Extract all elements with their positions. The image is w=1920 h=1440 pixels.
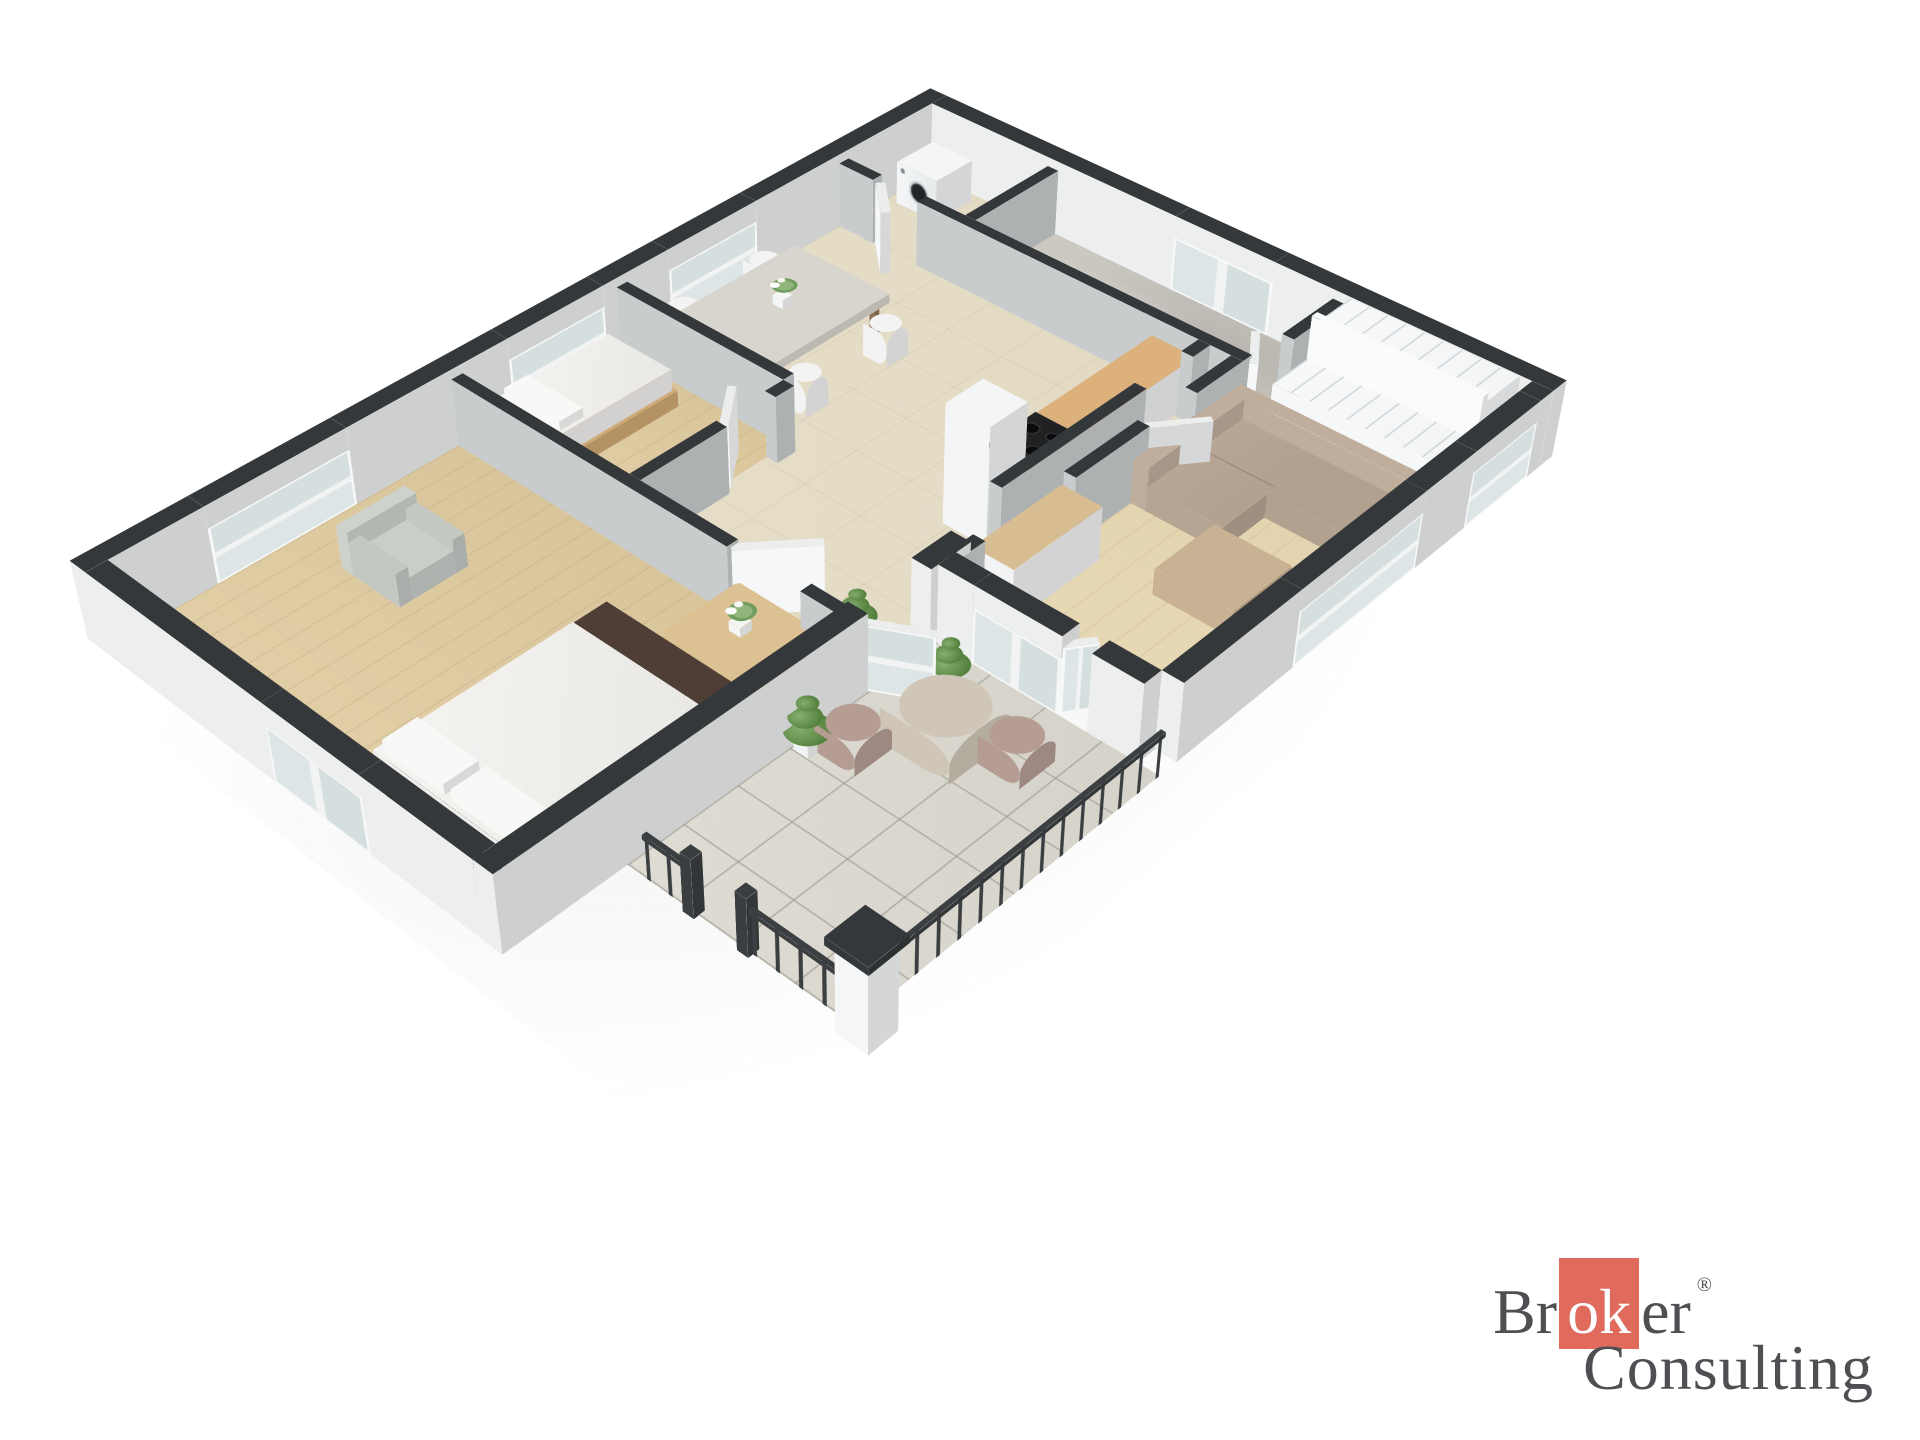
scene-3d <box>88 159 1577 1147</box>
broker-consulting-logo: Broker® Consulting <box>1493 1275 1874 1400</box>
logo-text-prefix: Br <box>1493 1276 1557 1347</box>
wall-guest-south-2-face-south <box>776 386 796 464</box>
floorplan-stage: Broker® Consulting <box>0 0 1920 1440</box>
door-garage-face-top <box>1249 331 1260 364</box>
kitchen-fridge-face-west <box>943 403 991 548</box>
registered-trademark-icon: ® <box>1697 1274 1712 1296</box>
door-laundry-face-south <box>880 212 891 274</box>
